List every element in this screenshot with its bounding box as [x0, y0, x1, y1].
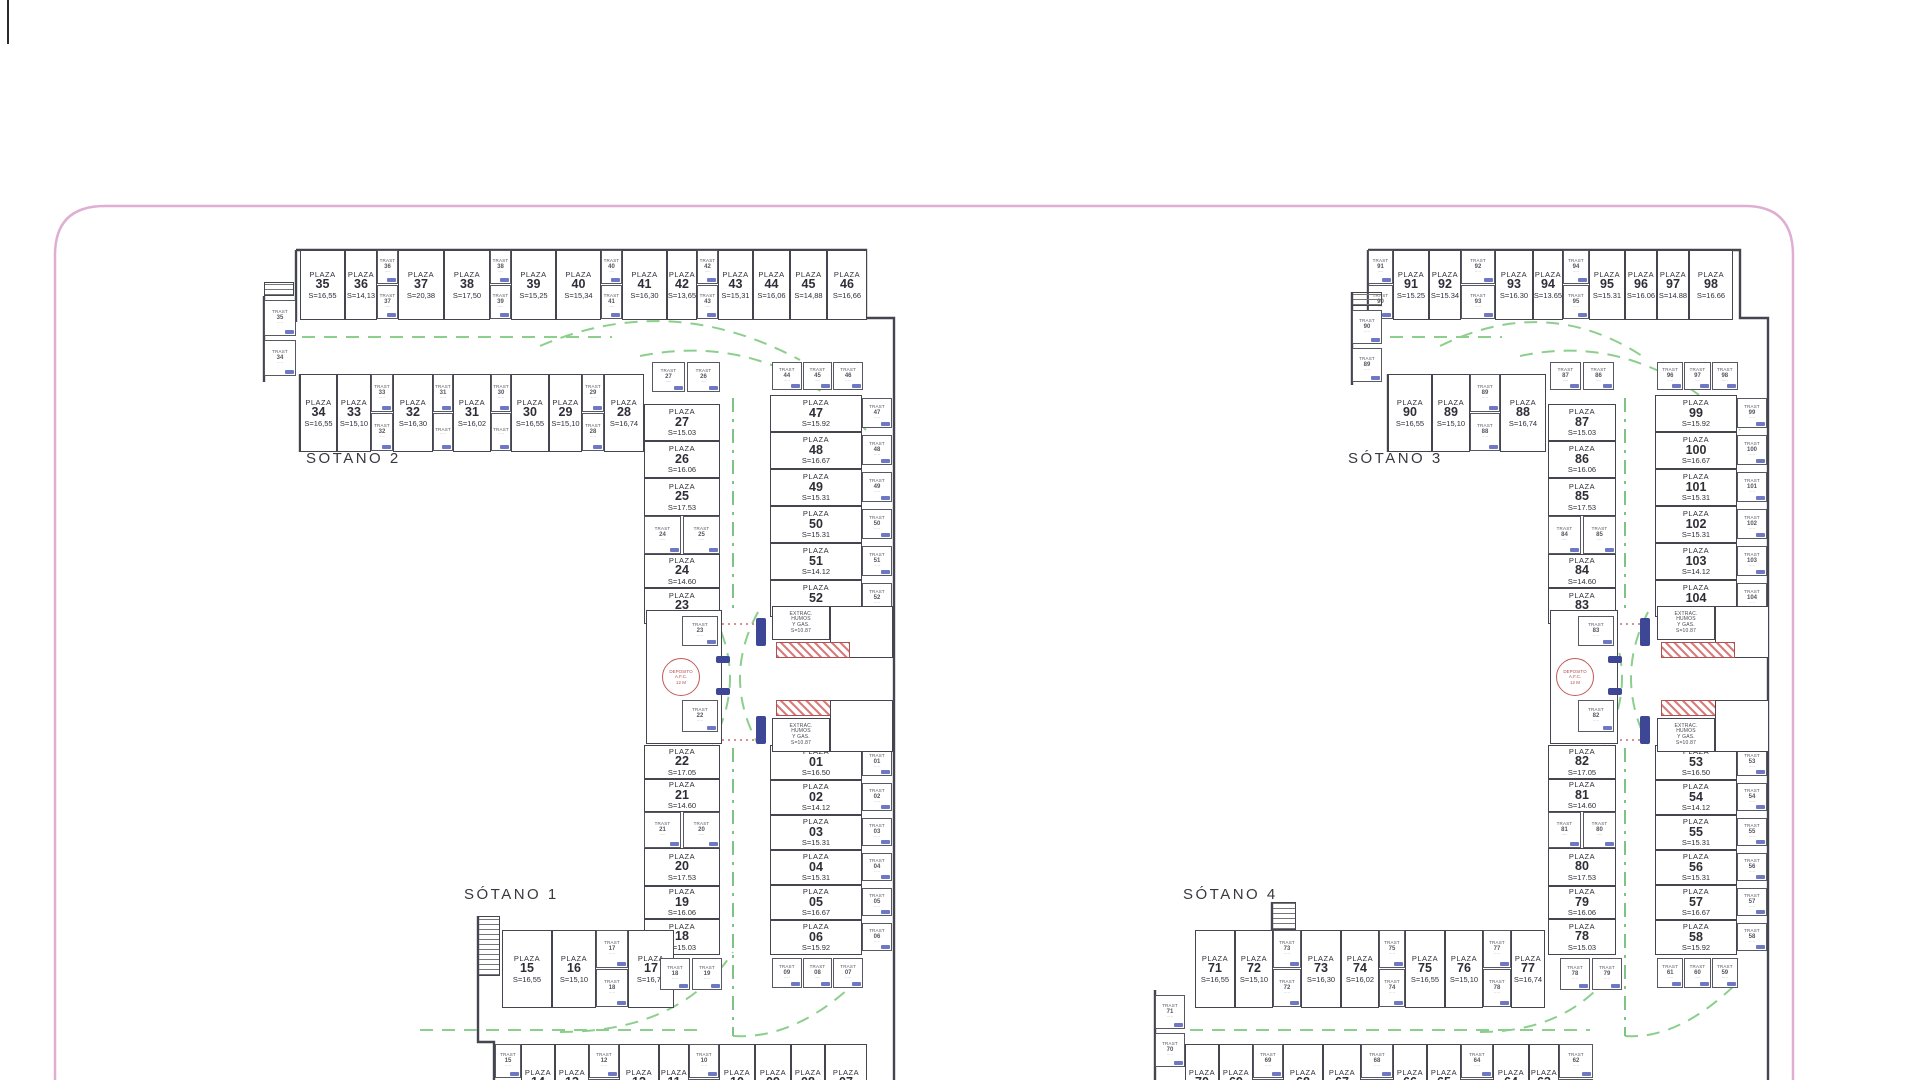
trast-box-36: TRAST36·····	[377, 250, 398, 284]
plaza-cell-89: PLAZA89S=15,10	[1432, 374, 1470, 452]
plaza-cell-100: PLAZA100S=16.67	[1655, 432, 1737, 469]
trast-box-100: TRAST100·····	[1737, 435, 1767, 465]
trast-box-68: TRAST68·····	[1361, 1044, 1393, 1078]
trast-box-86: TRAST86·····	[1583, 362, 1614, 390]
trast-box-82: TRAST82·····	[1578, 700, 1614, 732]
plaza-cell-63: PLAZA63	[1529, 1044, 1559, 1080]
plaza-cell-02: PLAZA02S=14.12	[770, 780, 862, 815]
trast-box-x: TRAST·····	[433, 413, 453, 451]
trast-box-75: TRAST75·····	[1379, 930, 1405, 968]
trast-box-90: TRAST90·····	[1352, 310, 1382, 344]
plaza-cell-12: PLAZA12	[619, 1044, 659, 1080]
trast-box-27: TRAST27·····	[652, 362, 685, 392]
trast-box-08: TRAST08·····	[803, 958, 833, 988]
plaza-cell-95: PLAZA95S=15.31	[1589, 250, 1625, 320]
plaza-cell-31: PLAZA31S=16,02	[453, 374, 491, 452]
trast-box-84: TRAST84·····	[1548, 516, 1581, 554]
trast-box-71: TRAST71·····	[1155, 995, 1185, 1029]
plaza-cell-15: PLAZA15S=16,55	[502, 930, 552, 1008]
trast-box-78: TRAST78·····	[1483, 969, 1511, 1007]
trast-box-79: TRAST79·····	[1592, 958, 1622, 990]
smoke-extraction-grille	[776, 642, 850, 658]
trast-box-42: TRAST42·····	[697, 250, 718, 284]
trast-box-93: TRAST93·····	[1461, 285, 1495, 319]
trast-box-44: TRAST44·····	[772, 362, 802, 390]
plaza-cell-03: PLAZA03S=15.31	[770, 815, 862, 850]
trast-box-12: TRAST12·····	[589, 1044, 619, 1078]
trast-box-97: TRAST97·····	[1684, 362, 1710, 390]
trast-box-24: TRAST24·····	[644, 516, 681, 554]
trast-box-69: TRAST69·····	[1253, 1044, 1283, 1078]
trast-box-60: TRAST60·····	[1684, 958, 1710, 988]
plaza-cell-87: PLAZA87S=15.03	[1548, 404, 1616, 441]
trast-box-48: TRAST48·····	[862, 435, 892, 465]
trast-box-88: TRAST88·····	[1470, 413, 1500, 451]
trast-box-87: TRAST87·····	[1550, 362, 1581, 390]
plaza-cell-25: PLAZA25S=17.53	[644, 478, 720, 516]
plaza-cell-82: PLAZA82S=17.05	[1548, 745, 1616, 779]
trast-box-40: TRAST40·····	[601, 250, 622, 284]
extraction-room: EXTRAC.HUMOSY GAS.S=10.87	[1657, 718, 1715, 752]
plaza-cell-38: PLAZA38S=17,50	[444, 250, 490, 320]
plaza-cell-37: PLAZA37S=20,38	[398, 250, 444, 320]
plaza-cell-78: PLAZA78S=15.03	[1548, 919, 1616, 955]
plaza-cell-101: PLAZA101S=15.31	[1655, 469, 1737, 506]
plaza-cell-98: PLAZA98S=16.66	[1689, 250, 1733, 320]
trast-box-80: TRAST80·····	[1583, 812, 1616, 848]
plaza-cell-48: PLAZA48S=16.67	[770, 432, 862, 469]
plaza-cell-64: PLAZA64	[1493, 1044, 1529, 1080]
trast-box-78: TRAST78·····	[1560, 958, 1590, 990]
label-sotano-4: SÓTANO 4	[1183, 886, 1278, 903]
door-leaf-marker	[1608, 656, 1622, 663]
plaza-cell-16: PLAZA16S=15,10	[552, 930, 596, 1008]
stair-icon	[478, 916, 500, 976]
trast-box-18: TRAST18·····	[660, 958, 690, 990]
plaza-cell-49: PLAZA49S=15.31	[770, 469, 862, 506]
plaza-cell-80: PLAZA80S=17.53	[1548, 848, 1616, 886]
trast-box-26: TRAST26·····	[687, 362, 720, 392]
plaza-cell-65: PLAZA65	[1427, 1044, 1461, 1080]
trast-box-35: TRAST35·····	[264, 300, 296, 336]
trast-box-30: TRAST30·····	[491, 374, 511, 412]
trast-box-73: TRAST73·····	[1273, 930, 1301, 968]
plaza-cell-69: PLAZA69	[1219, 1044, 1253, 1080]
plaza-cell-96: PLAZA96S=16.06	[1625, 250, 1657, 320]
trast-box-01: TRAST01·····	[862, 748, 892, 776]
trast-box-31: TRAST31·····	[433, 374, 453, 412]
trast-box-58: TRAST58·····	[1737, 923, 1767, 951]
plaza-cell-24: PLAZA24S=14.60	[644, 554, 720, 588]
trast-box-96: TRAST96·····	[1657, 362, 1683, 390]
trast-box-62: TRAST62·····	[1559, 1044, 1593, 1078]
trast-box-17: TRAST17·····	[596, 930, 628, 968]
trast-box-05: TRAST05·····	[862, 888, 892, 916]
trast-box-43: TRAST43·····	[697, 285, 718, 319]
trast-box-38: TRAST38·····	[490, 250, 511, 284]
plaza-cell-27: PLAZA27S=15.03	[644, 404, 720, 441]
plaza-cell-13: PLAZA13	[555, 1044, 589, 1080]
plaza-cell-21: PLAZA21S=14.60	[644, 779, 720, 812]
plaza-cell-86: PLAZA86S=16.06	[1548, 441, 1616, 478]
trast-box-91: TRAST91·····	[1368, 250, 1393, 284]
plaza-cell-102: PLAZA102S=15.31	[1655, 506, 1737, 543]
trast-box-70: TRAST70·····	[1155, 1033, 1185, 1067]
plaza-cell-29: PLAZA29S=15,10	[549, 374, 582, 452]
extraction-room: EXTRAC.HUMOSY GAS.S=10.87	[772, 606, 830, 640]
plaza-cell-19: PLAZA19S=16.06	[644, 886, 720, 919]
trast-box-04: TRAST04·····	[862, 853, 892, 881]
service-room	[830, 700, 893, 752]
trast-box-99: TRAST99·····	[1737, 398, 1767, 428]
trast-box-101: TRAST101·····	[1737, 472, 1767, 502]
plaza-cell-36: PLAZA36S=14,13	[345, 250, 377, 320]
trast-box-45: TRAST45·····	[803, 362, 833, 390]
door-leaf-marker	[1640, 618, 1650, 646]
trast-box-51: TRAST51·····	[862, 546, 892, 576]
trast-box-34: TRAST34·····	[264, 340, 296, 376]
trast-box-83: TRAST83·····	[1578, 616, 1614, 646]
plaza-cell-68: PLAZA68	[1283, 1044, 1323, 1080]
plaza-cell-06: PLAZA06S=15.92	[770, 920, 862, 955]
trast-box-89: TRAST89·····	[1470, 374, 1500, 412]
plaza-cell-10: PLAZA10	[719, 1044, 755, 1080]
plaza-cell-11: PLAZA11	[659, 1044, 689, 1080]
plaza-cell-05: PLAZA05S=16.67	[770, 885, 862, 920]
plaza-cell-67: PLAZA67	[1323, 1044, 1361, 1080]
plaza-cell-81: PLAZA81S=14.60	[1548, 779, 1616, 812]
door-leaf-marker	[716, 688, 730, 695]
trast-box-77: TRAST77·····	[1483, 930, 1511, 968]
trast-box-47: TRAST47·····	[862, 398, 892, 428]
trast-box-19: TRAST19·····	[692, 958, 722, 990]
plaza-cell-57: PLAZA57S=16.67	[1655, 885, 1737, 920]
trast-box-18: TRAST18·····	[596, 969, 628, 1007]
plaza-cell-66: PLAZA66	[1393, 1044, 1427, 1080]
trast-box-25: TRAST25·····	[683, 516, 720, 554]
extraction-room: EXTRAC.HUMOSY GAS.S=10.87	[772, 718, 830, 752]
stair-icon	[264, 282, 294, 296]
plaza-cell-92: PLAZA92S=15.34	[1429, 250, 1461, 320]
plaza-cell-14: PLAZA14	[521, 1044, 555, 1080]
plaza-cell-72: PLAZA72S=15,10	[1235, 930, 1273, 1008]
plaza-cell-71: PLAZA71S=16,55	[1195, 930, 1235, 1008]
plaza-cell-54: PLAZA54S=14.12	[1655, 780, 1737, 815]
trast-box-56: TRAST56·····	[1737, 853, 1767, 881]
trast-box-89: TRAST89·····	[1352, 348, 1382, 382]
plaza-cell-43: PLAZA43S=15,31	[718, 250, 753, 320]
trast-box-59: TRAST59·····	[1712, 958, 1738, 988]
trast-box-72: TRAST72·····	[1273, 969, 1301, 1007]
stair-icon	[1272, 902, 1296, 930]
trast-box-39: TRAST39·····	[490, 285, 511, 319]
plaza-cell-28: PLAZA28S=16,74	[604, 374, 644, 452]
trast-box-28: TRAST28·····	[582, 413, 604, 451]
plaza-cell-35: PLAZA35S=16,55	[300, 250, 345, 320]
trast-box-64: TRAST64·····	[1461, 1044, 1493, 1078]
plaza-cell-44: PLAZA44S=16,06	[753, 250, 790, 320]
plaza-cell-30: PLAZA30S=16,55	[511, 374, 549, 452]
plaza-cell-93: PLAZA93S=16.30	[1495, 250, 1533, 320]
trast-box-03: TRAST03·····	[862, 818, 892, 846]
trast-box-50: TRAST50·····	[862, 509, 892, 539]
plaza-cell-40: PLAZA40S=15,34	[556, 250, 601, 320]
plaza-cell-74: PLAZA74S=16,02	[1341, 930, 1379, 1008]
trast-box-41: TRAST41·····	[601, 285, 622, 319]
plaza-cell-56: PLAZA56S=15.31	[1655, 850, 1737, 885]
label-sotano-3: SÓTANO 3	[1348, 450, 1443, 467]
stair-icon	[1352, 292, 1382, 306]
trast-box-53: TRAST53·····	[1737, 748, 1767, 776]
plaza-cell-51: PLAZA51S=14.12	[770, 543, 862, 580]
door-leaf-marker	[1608, 688, 1622, 695]
plaza-cell-84: PLAZA84S=14.60	[1548, 554, 1616, 588]
trast-box-49: TRAST49·····	[862, 472, 892, 502]
trast-box-85: TRAST85·····	[1583, 516, 1616, 554]
trast-box-54: TRAST54·····	[1737, 783, 1767, 811]
trast-box-94: TRAST94·····	[1563, 250, 1589, 284]
trast-box-21: TRAST21·····	[644, 812, 681, 848]
plaza-cell-09: PLAZA09	[755, 1044, 791, 1080]
plaza-cell-75: PLAZA75S=16,55	[1405, 930, 1445, 1008]
plaza-cell-32: PLAZA32S=16,30	[393, 374, 433, 452]
trast-box-32: TRAST32·····	[371, 413, 393, 451]
plaza-cell-34: PLAZA34S=16,55	[300, 374, 337, 452]
plaza-cell-07: PLAZA07	[825, 1044, 867, 1080]
shaft-circle: DEPOSITOA.F.C.12 M	[662, 658, 700, 696]
plaza-cell-90: PLAZA90S=16,55	[1388, 374, 1432, 452]
plaza-cell-94: PLAZA94S=13.65	[1533, 250, 1563, 320]
trast-box-37: TRAST37·····	[377, 285, 398, 319]
trast-box-02: TRAST02·····	[862, 783, 892, 811]
plan-linework	[0, 0, 1920, 1080]
plaza-cell-91: PLAZA91S=15.25	[1393, 250, 1429, 320]
plaza-cell-04: PLAZA04S=15.31	[770, 850, 862, 885]
plaza-cell-47: PLAZA47S=15.92	[770, 395, 862, 432]
plaza-cell-73: PLAZA73S=16,30	[1301, 930, 1341, 1008]
plaza-cell-76: PLAZA76S=15,10	[1445, 930, 1483, 1008]
plaza-cell-88: PLAZA88S=16,74	[1500, 374, 1546, 452]
trast-box-15: TRAST15·····	[495, 1044, 521, 1078]
door-leaf-marker	[1640, 716, 1650, 744]
trast-box-06: TRAST06·····	[862, 923, 892, 951]
plaza-cell-103: PLAZA103S=14.12	[1655, 543, 1737, 580]
trast-box-74: TRAST74·····	[1379, 969, 1405, 1007]
trast-box-22: TRAST22·····	[682, 700, 718, 732]
plaza-cell-08: PLAZA08	[791, 1044, 825, 1080]
plaza-cell-77: PLAZA77S=16,74	[1511, 930, 1545, 1008]
trast-box-x: TRAST·····	[491, 413, 511, 451]
trast-box-20: TRAST20·····	[683, 812, 720, 848]
service-room	[1715, 700, 1769, 752]
plaza-cell-33: PLAZA33S=15,10	[337, 374, 371, 452]
plaza-cell-20: PLAZA20S=17.53	[644, 848, 720, 886]
plaza-cell-39: PLAZA39S=15,25	[511, 250, 556, 320]
extraction-room: EXTRAC.HUMOSY GAS.S=10.87	[1657, 606, 1715, 640]
plaza-cell-41: PLAZA41S=16,30	[622, 250, 667, 320]
trast-box-92: TRAST92·····	[1461, 250, 1495, 284]
floor-plan-canvas: SÓTANO 2 SÓTANO 1 SÓTANO 3 SÓTANO 4	[0, 0, 1920, 1080]
plaza-cell-26: PLAZA26S=16.06	[644, 441, 720, 478]
plaza-cell-79: PLAZA79S=16.06	[1548, 886, 1616, 919]
plaza-cell-58: PLAZA58S=15.92	[1655, 920, 1737, 955]
label-sotano-1: SÓTANO 1	[464, 886, 559, 903]
door-leaf-marker	[756, 716, 766, 744]
trast-box-33: TRAST33·····	[371, 374, 393, 412]
trast-box-10: TRAST10·····	[689, 1044, 719, 1078]
trast-box-46: TRAST46·····	[833, 362, 863, 390]
smoke-extraction-grille	[1661, 642, 1735, 658]
trast-box-29: TRAST29·····	[582, 374, 604, 412]
trast-box-98: TRAST98·····	[1712, 362, 1738, 390]
plaza-cell-42: PLAZA42S=13,65	[667, 250, 697, 320]
trast-box-55: TRAST55·····	[1737, 818, 1767, 846]
plaza-cell-85: PLAZA85S=17.53	[1548, 478, 1616, 516]
trast-box-61: TRAST61·····	[1657, 958, 1683, 988]
trast-box-09: TRAST09·····	[772, 958, 802, 988]
plaza-cell-97: PLAZA97S=14.88	[1657, 250, 1689, 320]
trast-box-103: TRAST103·····	[1737, 546, 1767, 576]
plaza-cell-50: PLAZA50S=15.31	[770, 506, 862, 543]
trast-box-102: TRAST102·····	[1737, 509, 1767, 539]
plaza-cell-45: PLAZA45S=14,88	[790, 250, 827, 320]
trast-box-07: TRAST07·····	[833, 958, 863, 988]
trast-box-81: TRAST81·····	[1548, 812, 1581, 848]
plaza-cell-55: PLAZA55S=15.31	[1655, 815, 1737, 850]
plaza-cell-99: PLAZA99S=15.92	[1655, 395, 1737, 432]
plaza-cell-22: PLAZA22S=17.05	[644, 745, 720, 779]
plaza-cell-46: PLAZA46S=16,66	[827, 250, 867, 320]
label-sotano-2: SÓTANO 2	[306, 450, 401, 467]
trast-box-23: TRAST23·····	[682, 616, 718, 646]
door-leaf-marker	[716, 656, 730, 663]
shaft-circle: DEPOSITOA.F.C.12 M	[1556, 658, 1594, 696]
door-leaf-marker	[756, 618, 766, 646]
trast-box-95: TRAST95·····	[1563, 285, 1589, 319]
trast-box-57: TRAST57·····	[1737, 888, 1767, 916]
plaza-cell-70: PLAZA70	[1185, 1044, 1219, 1080]
